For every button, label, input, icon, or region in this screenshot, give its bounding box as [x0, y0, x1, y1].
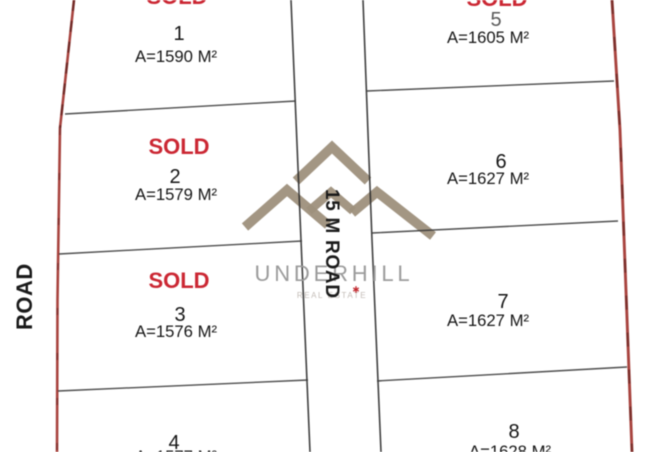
- svg-text:8: 8: [508, 421, 519, 443]
- svg-text:ROAD: ROAD: [12, 263, 37, 330]
- svg-text:A=1590 M²: A=1590 M²: [135, 47, 218, 66]
- svg-text:A=1628 M²: A=1628 M²: [469, 442, 552, 452]
- svg-text:A=1577 M²: A=1577 M²: [135, 447, 218, 452]
- svg-text:A=1627 M²: A=1627 M²: [447, 169, 530, 188]
- svg-text:SOLD: SOLD: [148, 134, 209, 159]
- svg-text:7: 7: [497, 291, 508, 313]
- svg-text:SOLD: SOLD: [148, 268, 209, 293]
- svg-text:A=1576 M²: A=1576 M²: [135, 322, 218, 341]
- svg-text:1: 1: [173, 23, 184, 45]
- svg-text:A=1605 M²: A=1605 M²: [447, 28, 530, 47]
- svg-text:A=1579 M²: A=1579 M²: [135, 185, 218, 204]
- svg-text:SOLD: SOLD: [146, 0, 207, 9]
- svg-text:15 M ROAD: 15 M ROAD: [321, 189, 342, 299]
- svg-text:A=1627 M²: A=1627 M²: [447, 311, 530, 330]
